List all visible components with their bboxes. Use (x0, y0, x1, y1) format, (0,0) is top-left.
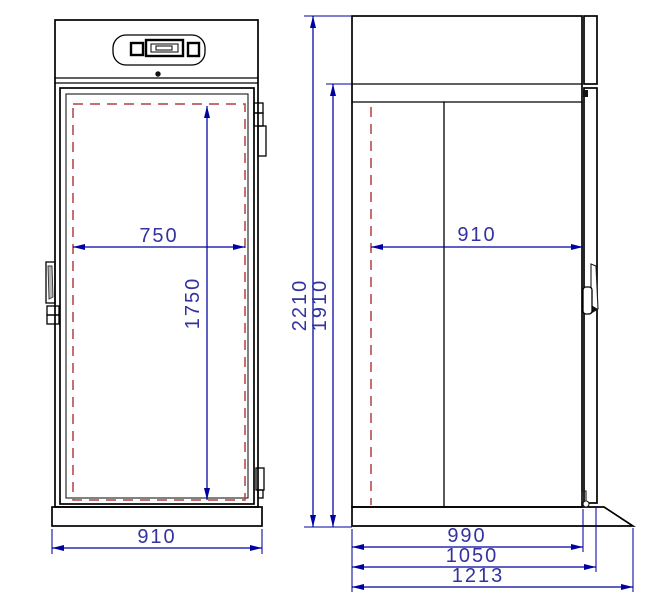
handle-bracket (583, 287, 592, 314)
front-door-handle (46, 262, 59, 324)
panel-display-window (151, 44, 178, 52)
dim-value-750: 750 (139, 225, 178, 247)
front-door-inner-edge (66, 94, 248, 498)
front-view: 750 1750 910 (46, 20, 266, 554)
dim-side-overall-height: 2210 (289, 16, 352, 527)
side-door-handle (583, 264, 598, 314)
dim-front-interior-height: 1750 (182, 106, 207, 500)
dim-value-1050: 1050 (446, 545, 499, 567)
drawing-svg: 750 1750 910 (0, 0, 662, 613)
dim-value-910-side: 910 (457, 224, 496, 246)
dim-value-990: 990 (447, 525, 486, 547)
dim-value-1213: 1213 (452, 565, 505, 587)
technical-drawing-canvas: 750 1750 910 (0, 0, 662, 613)
control-panel (113, 35, 205, 77)
dim-value-910-front: 910 (137, 526, 176, 548)
dim-value-2210: 2210 (289, 279, 311, 332)
handle-grip (48, 266, 53, 299)
side-door-top-pivot (583, 90, 588, 97)
panel-display-frame (146, 40, 183, 56)
dim-side-bottom-group: 990 1050 1213 (352, 506, 633, 592)
panel-display-digits (156, 46, 172, 50)
front-base (52, 507, 262, 526)
dim-value-1750: 1750 (182, 277, 204, 330)
dim-side-door-height: 1910 (309, 84, 352, 527)
dim-value-1910: 1910 (309, 279, 331, 332)
dim-side-interior-depth: 910 (371, 224, 583, 247)
front-hinge-top (254, 103, 266, 156)
front-clearance-dashed-rect (73, 104, 245, 500)
lock-block-upper (47, 306, 59, 315)
side-door-bottom-roller (583, 501, 589, 507)
side-body-outline (352, 16, 582, 507)
side-view: 2210 1910 910 990 1050 1213 (289, 16, 633, 592)
panel-indicator-dot (155, 71, 160, 76)
dim-front-interior-width: 750 (73, 225, 245, 247)
panel-button-left (131, 43, 143, 55)
side-header-front-strip (584, 16, 597, 84)
panel-button-right (188, 43, 199, 56)
front-door-outline (60, 88, 254, 504)
lock-block-lower (47, 315, 59, 324)
hinge-knuckle (258, 126, 266, 156)
side-base-with-ramp (352, 507, 633, 526)
dim-front-overall-width: 910 (52, 526, 262, 554)
front-cabinet-outline (55, 20, 258, 507)
